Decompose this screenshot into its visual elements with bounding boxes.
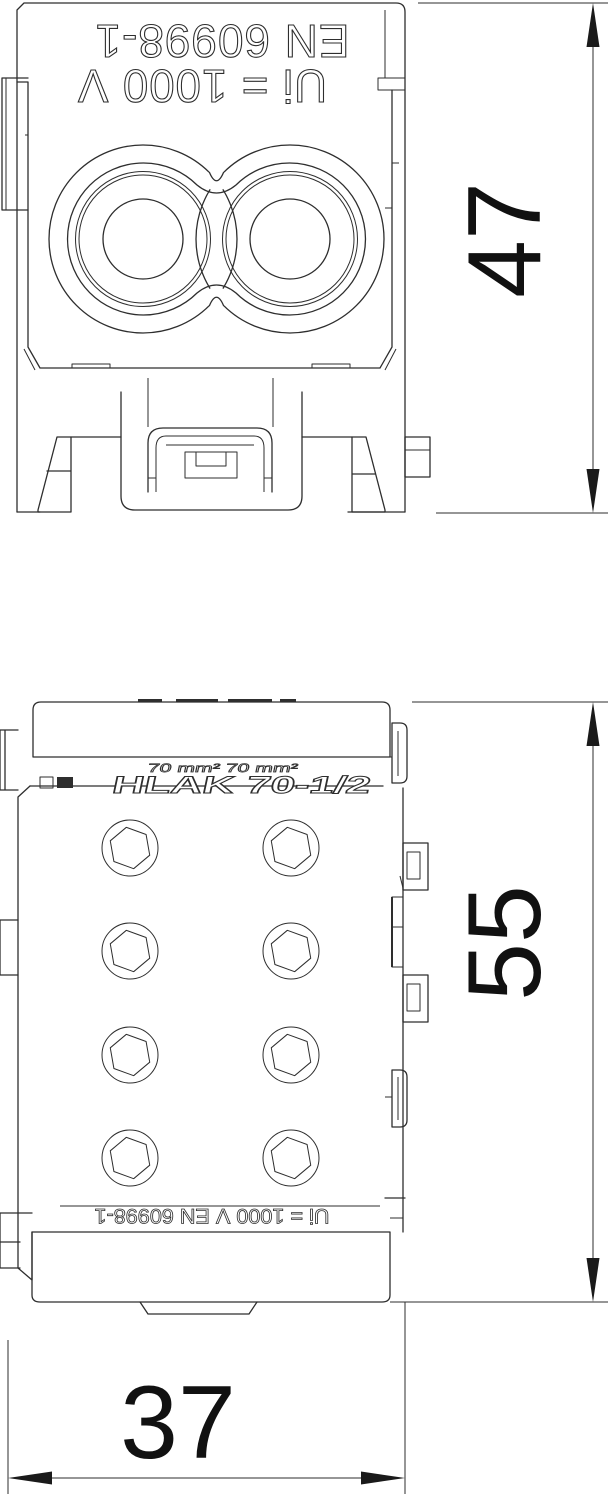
dimension-label-37: 37 <box>120 1365 236 1481</box>
rail-profile <box>385 723 428 1232</box>
right-conductor-hole <box>250 199 330 279</box>
dimension-top-view-height: 47 <box>418 3 608 513</box>
hex-screw <box>263 923 319 979</box>
logo-mark <box>57 777 73 788</box>
hex-screw <box>263 820 319 876</box>
dimension-label-47: 47 <box>447 182 563 298</box>
din-rail-foot <box>38 378 430 512</box>
hex-screws <box>102 820 319 1186</box>
front-marking-band: 70 mm² 70 mm² HLAK 70-1/2 <box>40 761 373 799</box>
arrow-right-icon <box>361 1472 405 1485</box>
hex-screw <box>263 1130 319 1186</box>
terminal-block-drawing: EN 60998-1 Ui = 1000 V <box>0 0 615 1500</box>
hex-screw <box>102 1130 158 1186</box>
wire-openings <box>49 145 384 333</box>
arrow-down-icon <box>587 469 600 513</box>
top-view-marking-standard: EN 60998-1 <box>95 15 350 67</box>
technical-drawing-page: EN 60998-1 Ui = 1000 V <box>0 0 615 1500</box>
arrow-down-icon <box>587 1258 600 1302</box>
dimension-label-55: 55 <box>447 885 563 1001</box>
arrow-up-icon <box>587 3 600 47</box>
hex-screw <box>102 820 158 876</box>
dimension-front-view-width: 37 <box>8 1302 405 1494</box>
front-marking-model: HLAK 70-1/2 <box>110 772 374 799</box>
top-view-marking-voltage: Ui = 1000 V <box>77 60 327 112</box>
left-conductor-hole <box>103 199 183 279</box>
hex-screw <box>263 1027 319 1083</box>
front-marking-bottom: Ui = 1000 V EN 60998-1 <box>95 1205 330 1228</box>
front-view: 70 mm² 70 mm² HLAK 70-1/2 <box>0 699 428 1314</box>
hex-screw <box>102 923 158 979</box>
arrow-left-icon <box>8 1472 52 1485</box>
dimension-front-view-height: 55 <box>390 702 608 1302</box>
hex-screw <box>102 1027 158 1083</box>
arrow-up-icon <box>587 702 600 746</box>
top-view: EN 60998-1 Ui = 1000 V <box>2 3 430 512</box>
